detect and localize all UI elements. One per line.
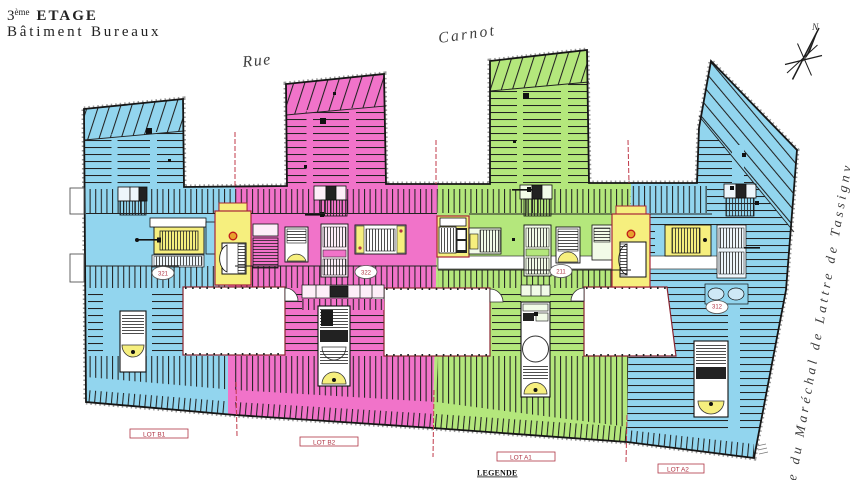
svg-text:LOT A2: LOT A2 [667, 467, 689, 474]
svg-text:LOT A1: LOT A1 [510, 455, 532, 462]
svg-text:312: 312 [712, 305, 723, 311]
svg-text:LOT B2: LOT B2 [313, 440, 336, 447]
svg-text:Bâtiment Bureaux: Bâtiment Bureaux [7, 24, 161, 40]
svg-text:321: 321 [158, 272, 169, 278]
svg-text:Rue: Rue [241, 51, 273, 71]
svg-text:211: 211 [556, 270, 566, 276]
svg-text:N: N [811, 23, 819, 33]
svg-text:LOT B1: LOT B1 [143, 432, 166, 439]
svg-text:322: 322 [361, 271, 372, 277]
svg-text:LEGENDE: LEGENDE [477, 469, 518, 478]
